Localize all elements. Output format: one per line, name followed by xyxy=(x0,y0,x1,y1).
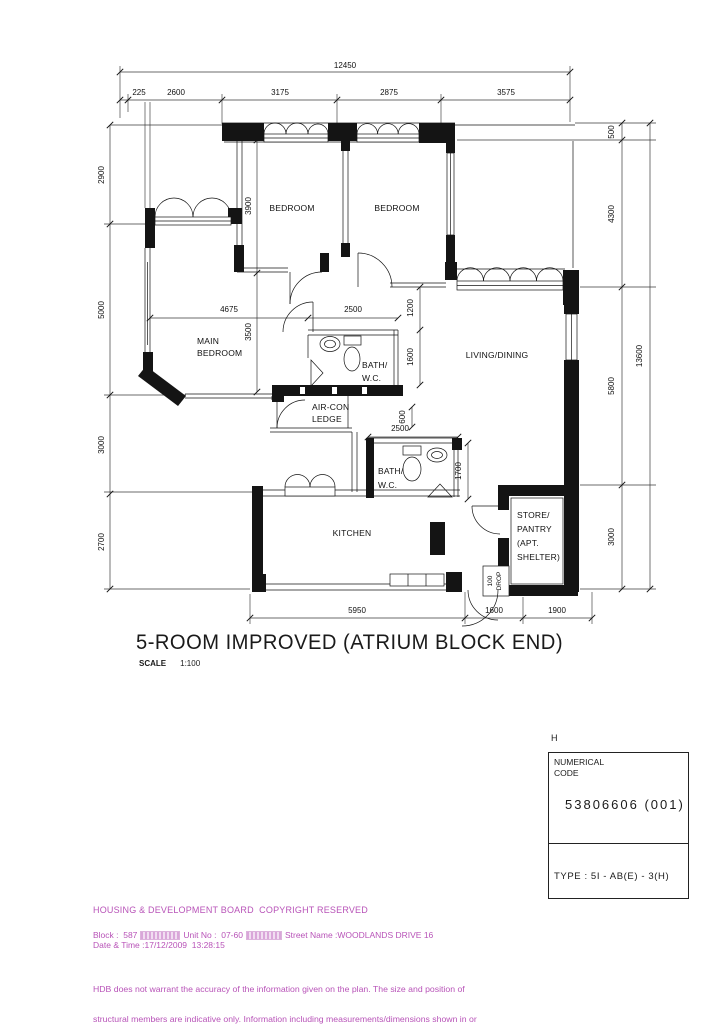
dim-hall-width: 2500 xyxy=(344,305,362,314)
living-dining-window xyxy=(457,268,563,290)
numerical-code-section: NUMERICAL CODE 53806606 (001) xyxy=(549,753,688,844)
scale-value: 1:100 xyxy=(180,659,200,668)
bath1-basin xyxy=(320,337,340,352)
dim-right-4300: 4300 xyxy=(607,205,616,223)
floor-plan-page: 12450 225 2600 3175 2875 3575 2900 5000 … xyxy=(0,0,724,1024)
bedroom1-door xyxy=(290,272,322,304)
dim-bath2-height: 1700 xyxy=(454,462,463,480)
dim-ledge-600: 600 xyxy=(398,410,407,424)
bedroom1-window xyxy=(264,123,328,142)
bedroom2-window xyxy=(357,124,419,142)
street-label: Street Name :WOODLANDS DRIVE 16 xyxy=(285,930,433,940)
copyright-line: HOUSING & DEVELOPMENT BOARD COPYRIGHT RE… xyxy=(93,905,368,915)
dim-right-3000: 3000 xyxy=(607,528,616,546)
disclaimer: HDB does not warrant the accuracy of the… xyxy=(93,963,498,1024)
dim-mbr-width: 4675 xyxy=(220,305,238,314)
bath2-door xyxy=(428,484,452,497)
dim-bath2-width: 2500 xyxy=(391,424,409,433)
dim-bath1-height: 1600 xyxy=(406,348,415,366)
bedroom1-label: BEDROOM xyxy=(269,203,314,213)
store-label-2: PANTRY xyxy=(517,524,552,534)
h-mark: H xyxy=(551,733,558,743)
redaction-block-2 xyxy=(246,931,282,940)
main-bedroom-label-2: BEDROOM xyxy=(197,348,242,358)
unit-label: Unit No : 07-60 xyxy=(183,930,243,940)
bath1-label-1: BATH/ xyxy=(362,360,388,370)
scale-line: SCALE1:100 xyxy=(139,659,200,668)
numerical-code-value: 53806606 (001) xyxy=(565,797,685,812)
dim-left-2900: 2900 xyxy=(97,166,106,184)
block-label: Block : 587 xyxy=(93,930,137,940)
datetime-line: Date & Time :17/12/2009 13:28:15 xyxy=(93,940,225,950)
type-value: TYPE : 5I - AB(E) - 3(H) xyxy=(554,871,669,882)
dim-top-3175: 3175 xyxy=(271,88,289,97)
bath2-label-1: BATH/ xyxy=(378,466,404,476)
plan-title: 5-ROOM IMPROVED (ATRIUM BLOCK END) xyxy=(136,631,563,655)
store-label-3: (APT. xyxy=(517,538,539,548)
bath1-toilet xyxy=(344,336,361,371)
bath2-label-2: W.C. xyxy=(378,480,397,490)
block-line: Block : 587 Unit No : 07-60 Street Name … xyxy=(93,930,433,940)
dim-right-500: 500 xyxy=(607,125,616,139)
disclaimer-line-2: structural members are indicative only. … xyxy=(93,1014,498,1024)
dim-top-overall: 12450 xyxy=(334,61,357,70)
dim-left-2700: 2700 xyxy=(97,533,106,551)
dim-bottom-5950: 5950 xyxy=(348,606,366,615)
aircon-ledge-label-2: LEDGE xyxy=(312,414,342,424)
numerical-code-box: NUMERICAL CODE 53806606 (001) TYPE : 5I … xyxy=(548,752,689,899)
redaction-block-1 xyxy=(140,931,180,940)
dim-left-3000: 3000 xyxy=(97,436,106,454)
numerical-code-label: NUMERICAL CODE xyxy=(554,757,604,779)
main-bedroom-label-1: MAIN xyxy=(197,336,219,346)
dim-bottom-1900: 1900 xyxy=(548,606,566,615)
bath2-basin xyxy=(427,448,447,462)
main-bedroom-window xyxy=(155,198,231,225)
dim-mbr-height: 3500 xyxy=(244,323,253,341)
scale-label: SCALE xyxy=(139,659,166,668)
entrance-step-label-1: 100 xyxy=(487,575,494,586)
doors xyxy=(277,253,500,626)
dim-strip-1200: 1200 xyxy=(406,299,415,317)
room-labels: BEDROOM BEDROOM MAIN BEDROOM LIVING/DINI… xyxy=(197,203,560,590)
bedroom2-door xyxy=(358,253,392,287)
entrance-step-label-2: DROP xyxy=(496,572,503,591)
kitchen-label: KITCHEN xyxy=(333,528,372,538)
dim-top-3575: 3575 xyxy=(497,88,515,97)
dim-top-225: 225 xyxy=(132,88,146,97)
dim-right-overall: 13600 xyxy=(635,344,644,367)
store-door xyxy=(472,506,500,534)
dim-left-5000: 5000 xyxy=(97,301,106,319)
bath1-door xyxy=(311,360,323,386)
dim-right-5800: 5800 xyxy=(607,377,616,395)
aircon-ledge-label-1: AIR-CON xyxy=(312,402,349,412)
dim-bottom-1600: 1600 xyxy=(485,606,503,615)
bedroom2-label: BEDROOM xyxy=(374,203,419,213)
dim-top-2875: 2875 xyxy=(380,88,398,97)
living-dining-label: LIVING/DINING xyxy=(466,350,529,360)
bath2-toilet xyxy=(403,446,421,481)
store-label-1: STORE/ xyxy=(517,510,550,520)
kitchen-window xyxy=(285,475,335,497)
aircon-ledge-door xyxy=(277,400,305,428)
dim-top-2600: 2600 xyxy=(167,88,185,97)
bath1-label-2: W.C. xyxy=(362,373,381,383)
floor-plan-drawing: 12450 225 2600 3175 2875 3575 2900 5000 … xyxy=(0,0,724,724)
disclaimer-line-1: HDB does not warrant the accuracy of the… xyxy=(93,984,498,994)
store-label-4: SHELTER) xyxy=(517,552,560,562)
dim-bedroom-height: 3900 xyxy=(244,197,253,215)
